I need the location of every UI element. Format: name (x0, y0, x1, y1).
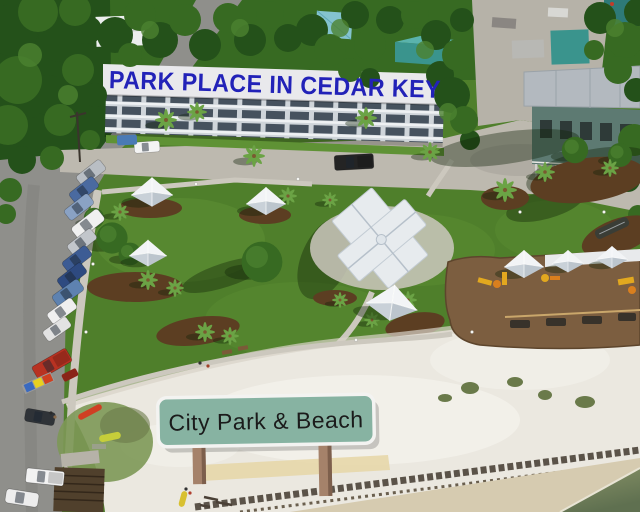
sign-text: City Park & Beach (168, 406, 364, 435)
lot-vehicle (492, 17, 517, 29)
blue-canopy (117, 134, 137, 145)
aerial-photo-canvas: PARK PLACE IN CEDAR KEY City Park & Beac… (0, 0, 640, 512)
playground (445, 246, 640, 349)
sign-post-left-edge (201, 446, 206, 484)
street-wear (29, 185, 34, 512)
black-pickup (334, 154, 374, 171)
corner-detail (610, 2, 614, 6)
teal-roof-building (550, 29, 589, 64)
aerial-photo: PARK PLACE IN CEDAR KEY City Park & Beac… (0, 0, 640, 512)
white-car (134, 141, 160, 154)
gray-roof-building (512, 39, 545, 58)
lot-vehicle (548, 7, 568, 17)
beach-bench (92, 444, 106, 449)
